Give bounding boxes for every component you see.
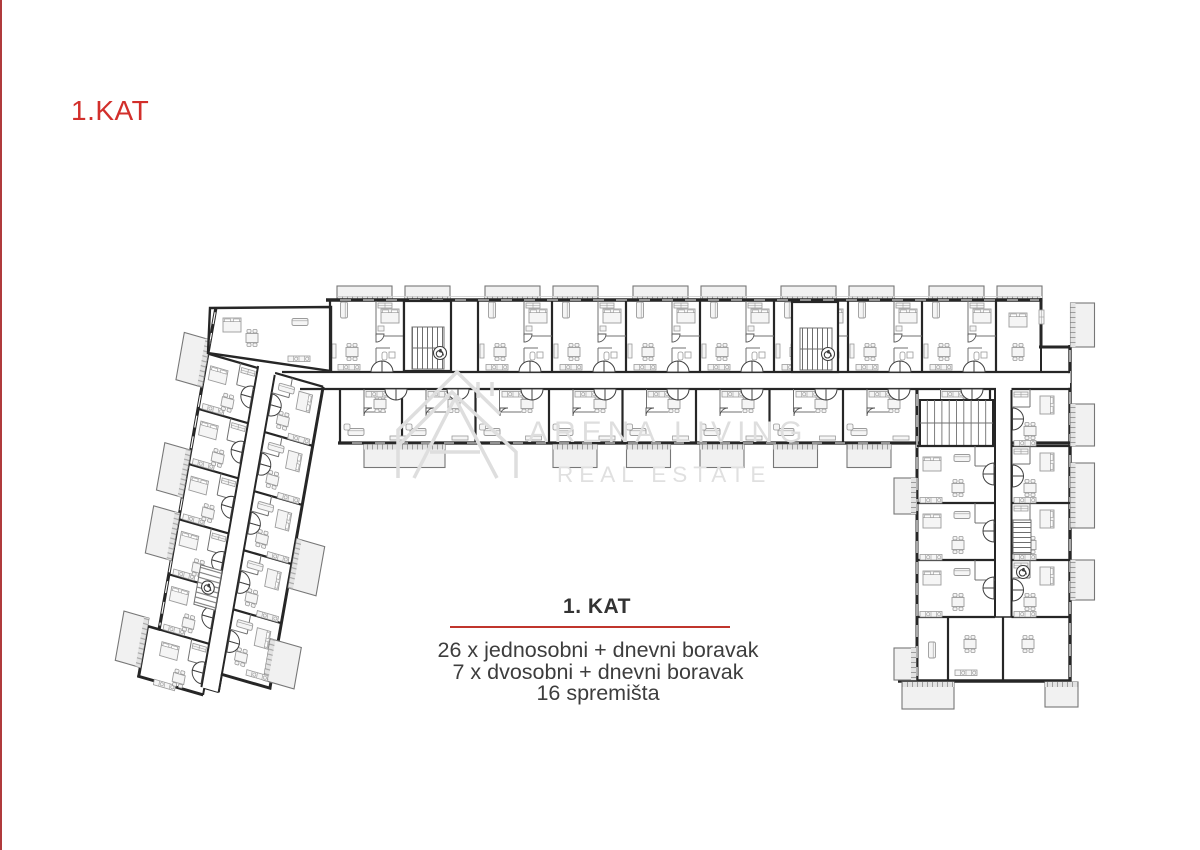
svg-text:ARENA LIVING: ARENA LIVING bbox=[528, 416, 808, 449]
svg-text:REAL ESTATE: REAL ESTATE bbox=[557, 462, 771, 487]
